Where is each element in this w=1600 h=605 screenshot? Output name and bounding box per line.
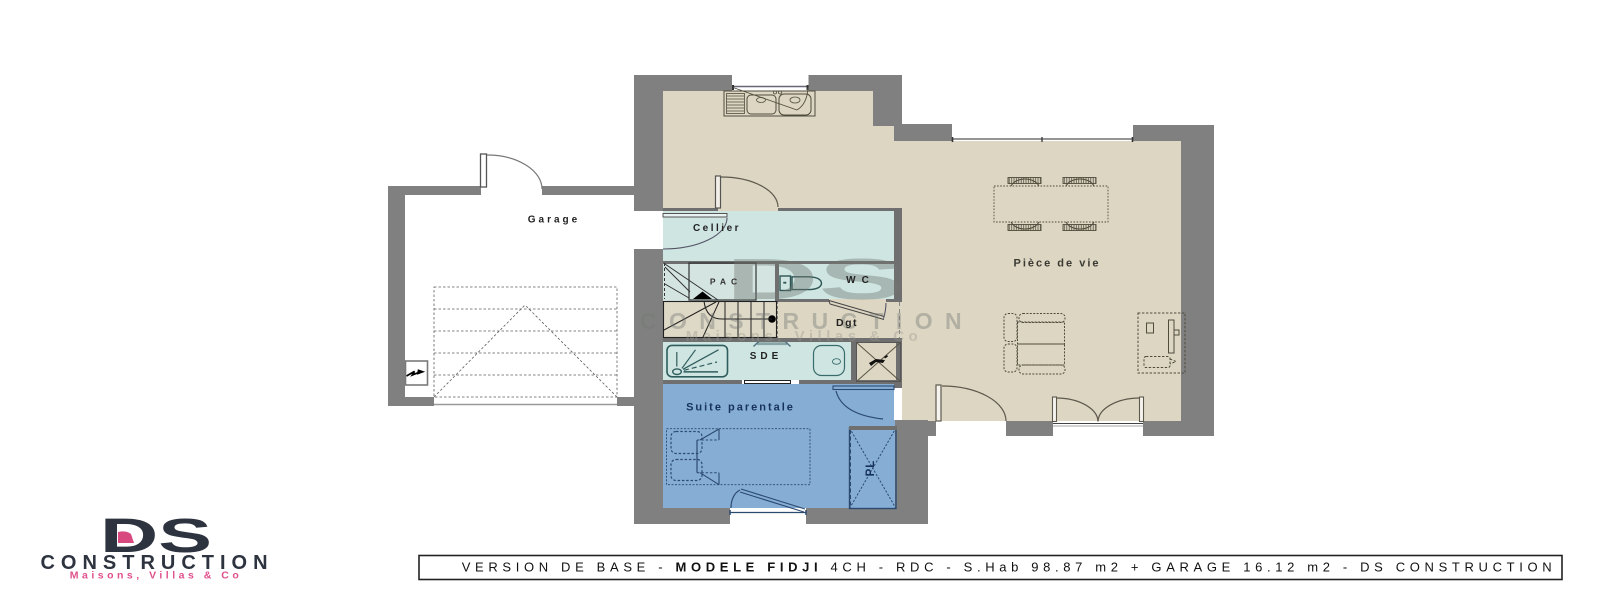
svg-text:Maisons, Villas & Co: Maisons, Villas & Co: [686, 328, 922, 345]
svg-text:PAC: PAC: [710, 276, 742, 286]
svg-text:PL: PL: [865, 460, 877, 477]
svg-text:DS: DS: [726, 247, 905, 311]
svg-text:Maisons, Villas & Co: Maisons, Villas & Co: [70, 570, 243, 582]
svg-text:WC: WC: [846, 275, 875, 286]
svg-text:Dgt: Dgt: [836, 317, 858, 329]
svg-text:VERSION DE BASE - MODELE FIDJI: VERSION DE BASE - MODELE FIDJI 4CH - RDC…: [462, 560, 1557, 575]
svg-text:Pièce de vie: Pièce de vie: [1014, 258, 1101, 270]
svg-text:Cellier: Cellier: [693, 223, 741, 234]
svg-text:SDE: SDE: [750, 351, 783, 362]
svg-text:Garage: Garage: [528, 215, 580, 226]
svg-text:Suite parentale: Suite parentale: [686, 402, 795, 414]
